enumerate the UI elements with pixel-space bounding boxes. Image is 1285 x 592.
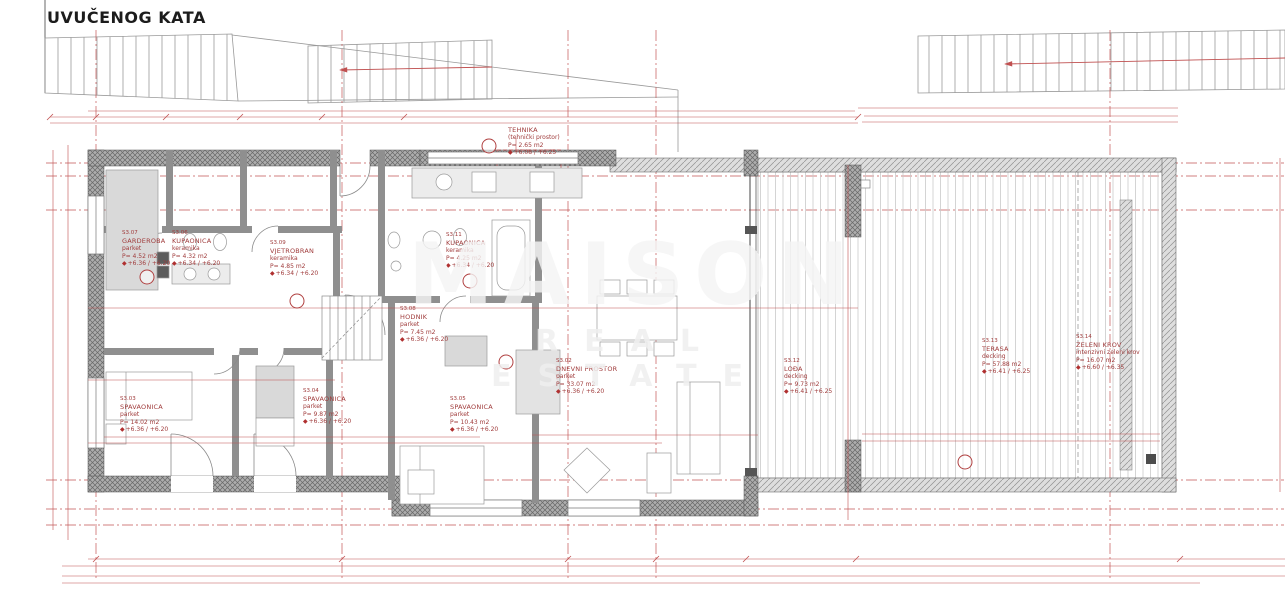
interior-stair <box>322 296 382 360</box>
floor-plan-canvas: UVUČENOG KATA S3.07 GARDEROBA parket P= … <box>0 0 1285 592</box>
page-title: UVUČENOG KATA <box>47 8 206 27</box>
terrace-decking <box>758 172 1162 478</box>
glass-wall <box>745 176 757 476</box>
furniture <box>106 168 720 504</box>
neighbor-structures <box>45 0 1285 152</box>
doors <box>136 166 466 476</box>
plan-drawing <box>0 0 1285 592</box>
